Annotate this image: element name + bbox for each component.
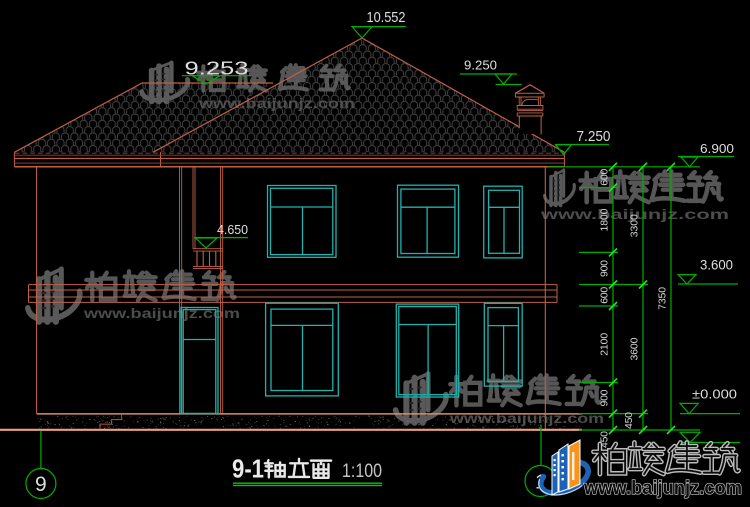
- svg-text:7350: 7350: [657, 287, 669, 310]
- svg-text:9.250: 9.250: [464, 59, 497, 73]
- svg-text:9-1: 9-1: [232, 454, 264, 484]
- svg-text:2100: 2100: [599, 333, 611, 356]
- svg-text:9: 9: [35, 473, 47, 496]
- svg-text:www.baijunjz.com: www.baijunjz.com: [449, 410, 604, 426]
- svg-text:4.650: 4.650: [217, 223, 248, 237]
- svg-text:1:100: 1:100: [342, 461, 382, 482]
- svg-text:900: 900: [599, 389, 611, 406]
- svg-text:www.baijunjz.com: www.baijunjz.com: [583, 478, 742, 499]
- svg-text:10.552: 10.552: [367, 9, 406, 26]
- svg-text:www.baijunjz.com: www.baijunjz.com: [198, 96, 355, 111]
- svg-text:3.600: 3.600: [700, 257, 733, 273]
- svg-text:3600: 3600: [629, 337, 641, 360]
- svg-text:7.250: 7.250: [577, 129, 611, 145]
- svg-text:6.900: 6.900: [700, 141, 734, 156]
- svg-text:3300: 3300: [629, 214, 641, 237]
- svg-text:±0.000: ±0.000: [692, 387, 737, 402]
- svg-text:9.253: 9.253: [185, 58, 249, 79]
- svg-text:600: 600: [599, 287, 611, 304]
- svg-text:1800: 1800: [599, 208, 611, 231]
- svg-text:900: 900: [599, 260, 611, 277]
- svg-text:450: 450: [623, 412, 635, 429]
- svg-text:600: 600: [599, 169, 611, 186]
